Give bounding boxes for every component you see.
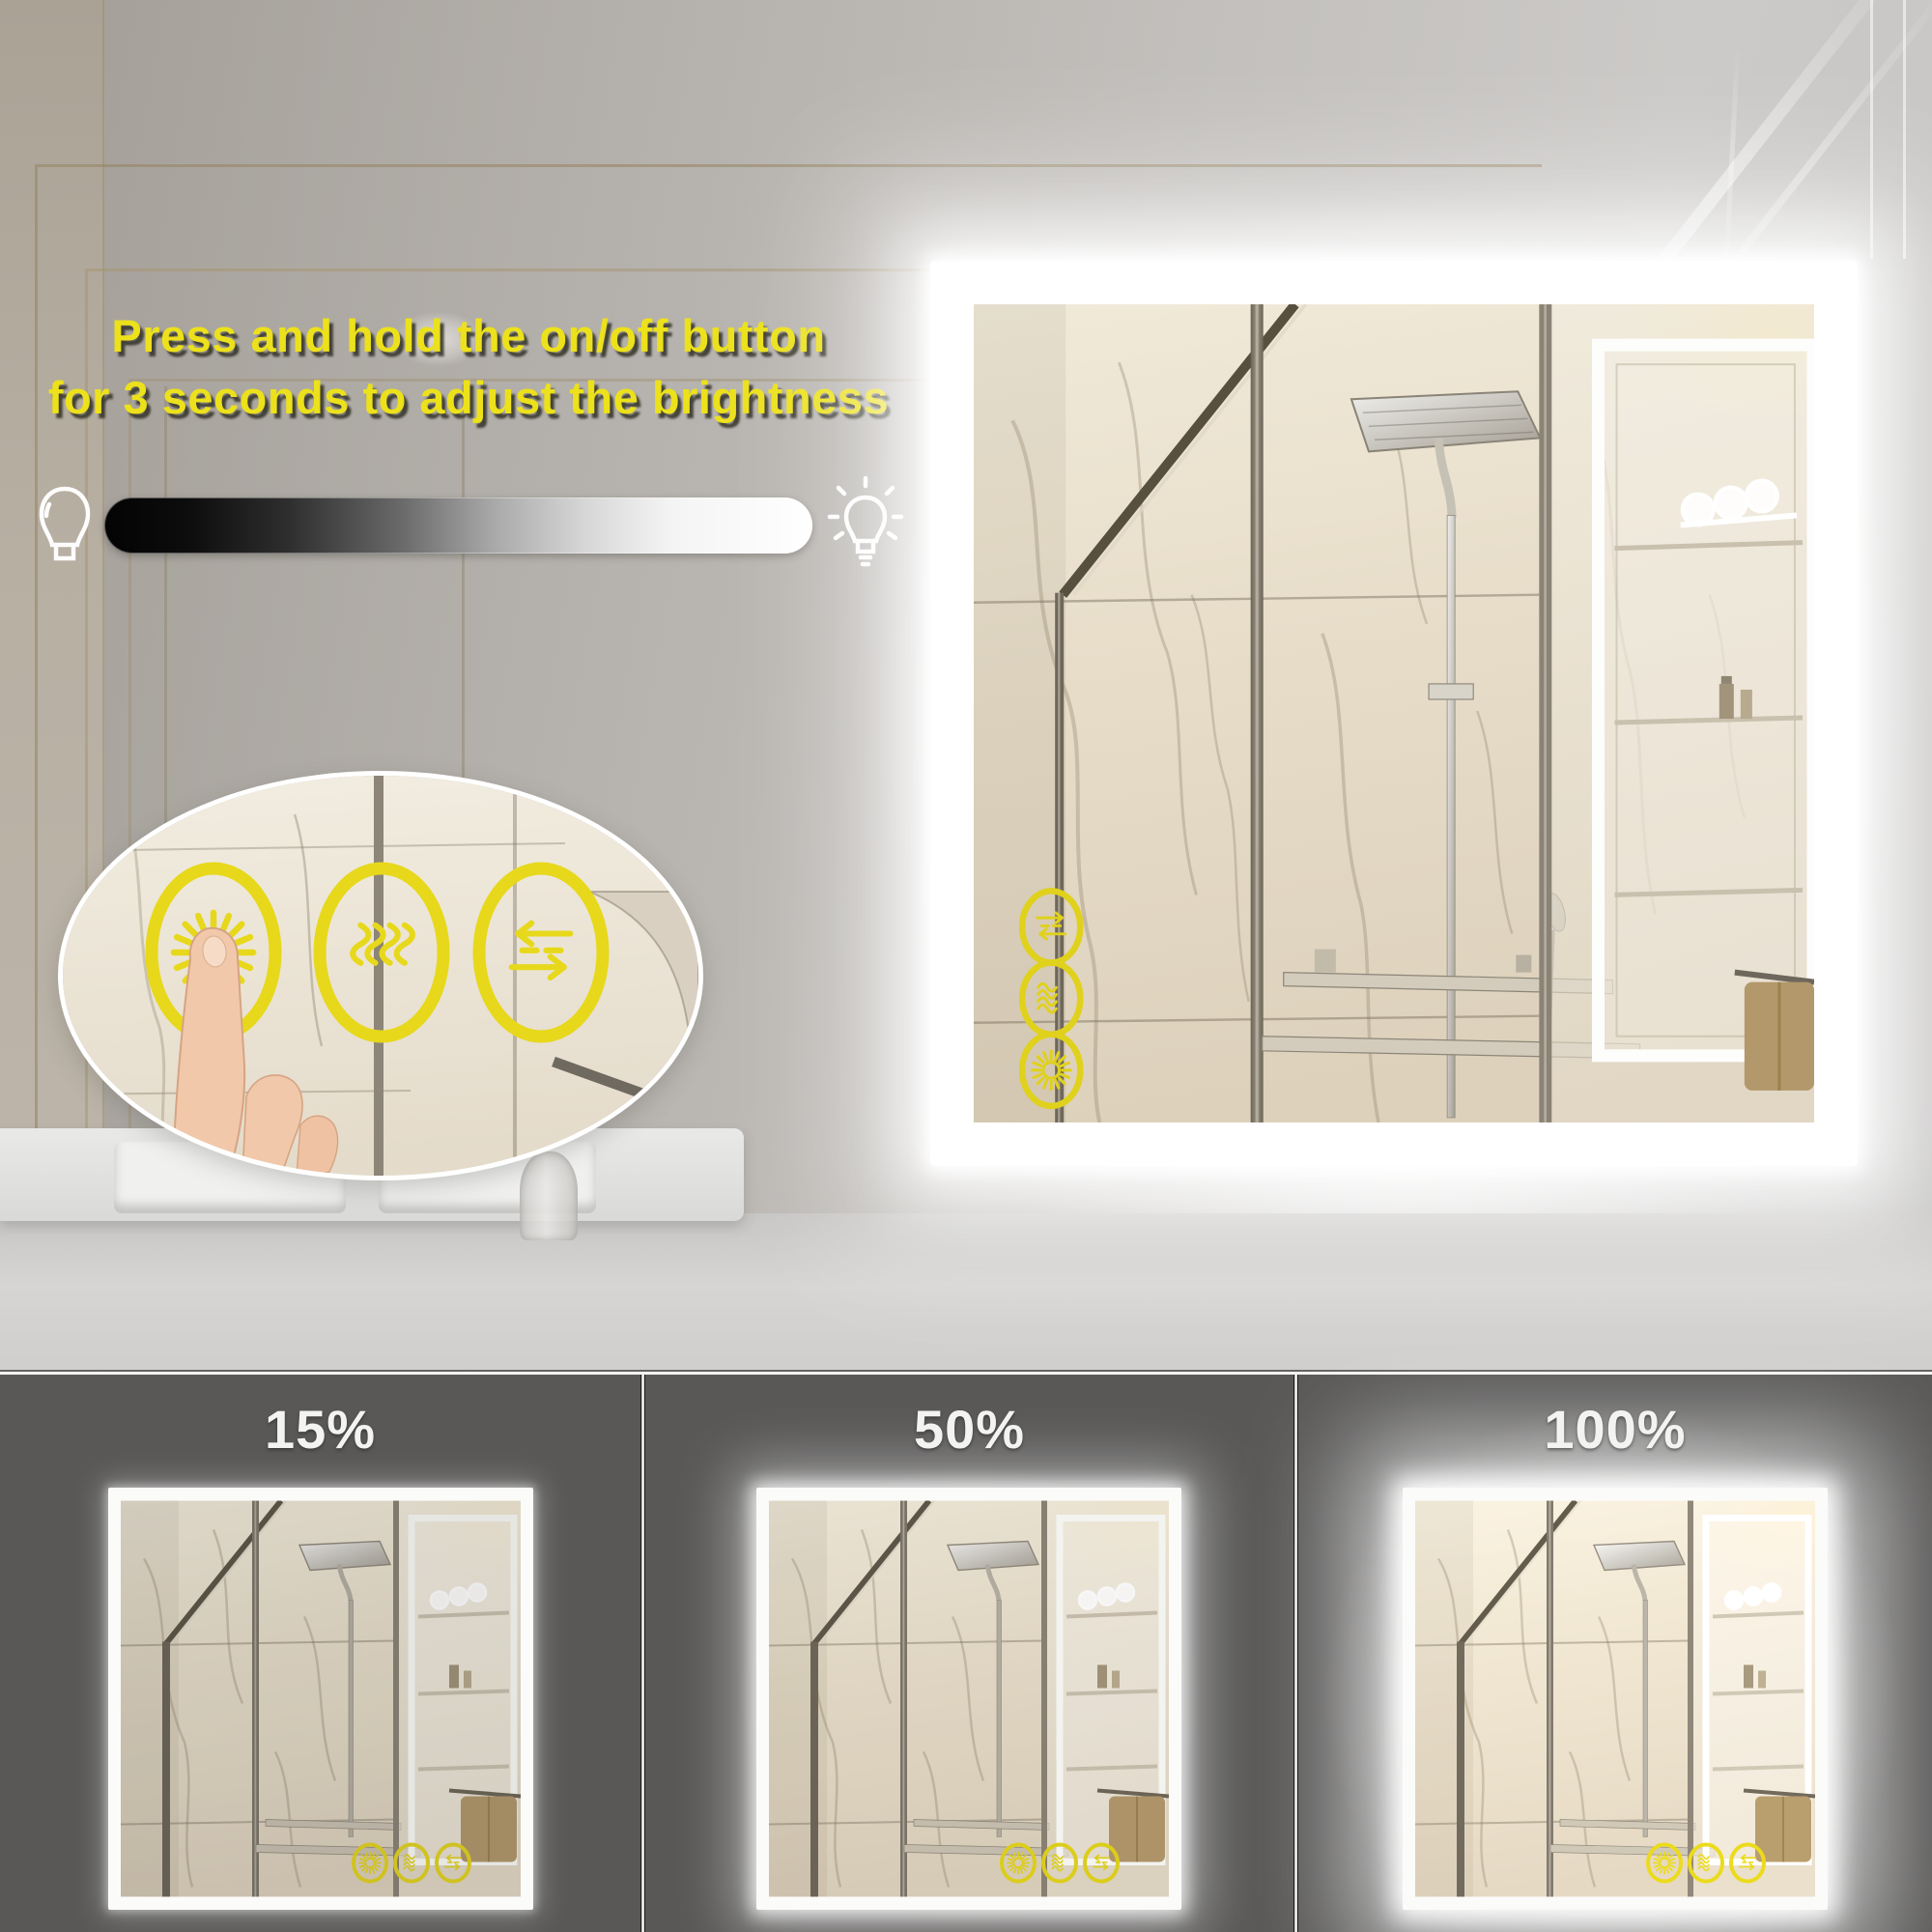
shower-glass-edge: [1870, 0, 1873, 259]
brightness-level-label: 15%: [0, 1398, 640, 1461]
bulb-bright-icon: [822, 472, 909, 579]
mirror-preview-100: [1403, 1488, 1828, 1910]
brightness-level-label: 50%: [645, 1398, 1293, 1461]
instruction-text: Press and hold the on/off button for 3 s…: [17, 305, 920, 430]
brightness-panel-100: 100%: [1298, 1375, 1932, 1932]
brightness-gradient-bar[interactable]: [104, 497, 812, 554]
brightness-levels-section: 15% 50% 100%: [0, 1375, 1932, 1932]
mirror-preview-50: [756, 1488, 1181, 1910]
mirror-preview-face: [1415, 1500, 1815, 1897]
glass-vase: [520, 1151, 578, 1240]
brightness-slider: [35, 469, 909, 581]
shower-glass-edge: [1903, 0, 1906, 259]
top-scene: Press and hold the on/off button for 3 s…: [0, 0, 1932, 1375]
instruction-line-2: for 3 seconds to adjust the brightness: [17, 367, 920, 429]
brightness-panel-15: 15%: [0, 1375, 640, 1932]
brightness-level-label: 100%: [1298, 1398, 1932, 1461]
mirror-preview-face: [769, 1500, 1169, 1897]
led-mirror: [930, 261, 1858, 1166]
mirror-preview-face: [121, 1500, 521, 1897]
led-mirror-face: [974, 304, 1814, 1122]
instruction-line-1: Press and hold the on/off button: [17, 305, 920, 367]
panel-divider: [640, 1375, 645, 1932]
bulb-dim-icon: [35, 477, 95, 574]
panel-divider: [1293, 1375, 1298, 1932]
mirror-preview-15: [108, 1488, 533, 1910]
product-infographic: Press and hold the on/off button for 3 s…: [0, 0, 1932, 1932]
touch-controls-inset: [58, 771, 703, 1180]
brightness-panel-50: 50%: [645, 1375, 1293, 1932]
